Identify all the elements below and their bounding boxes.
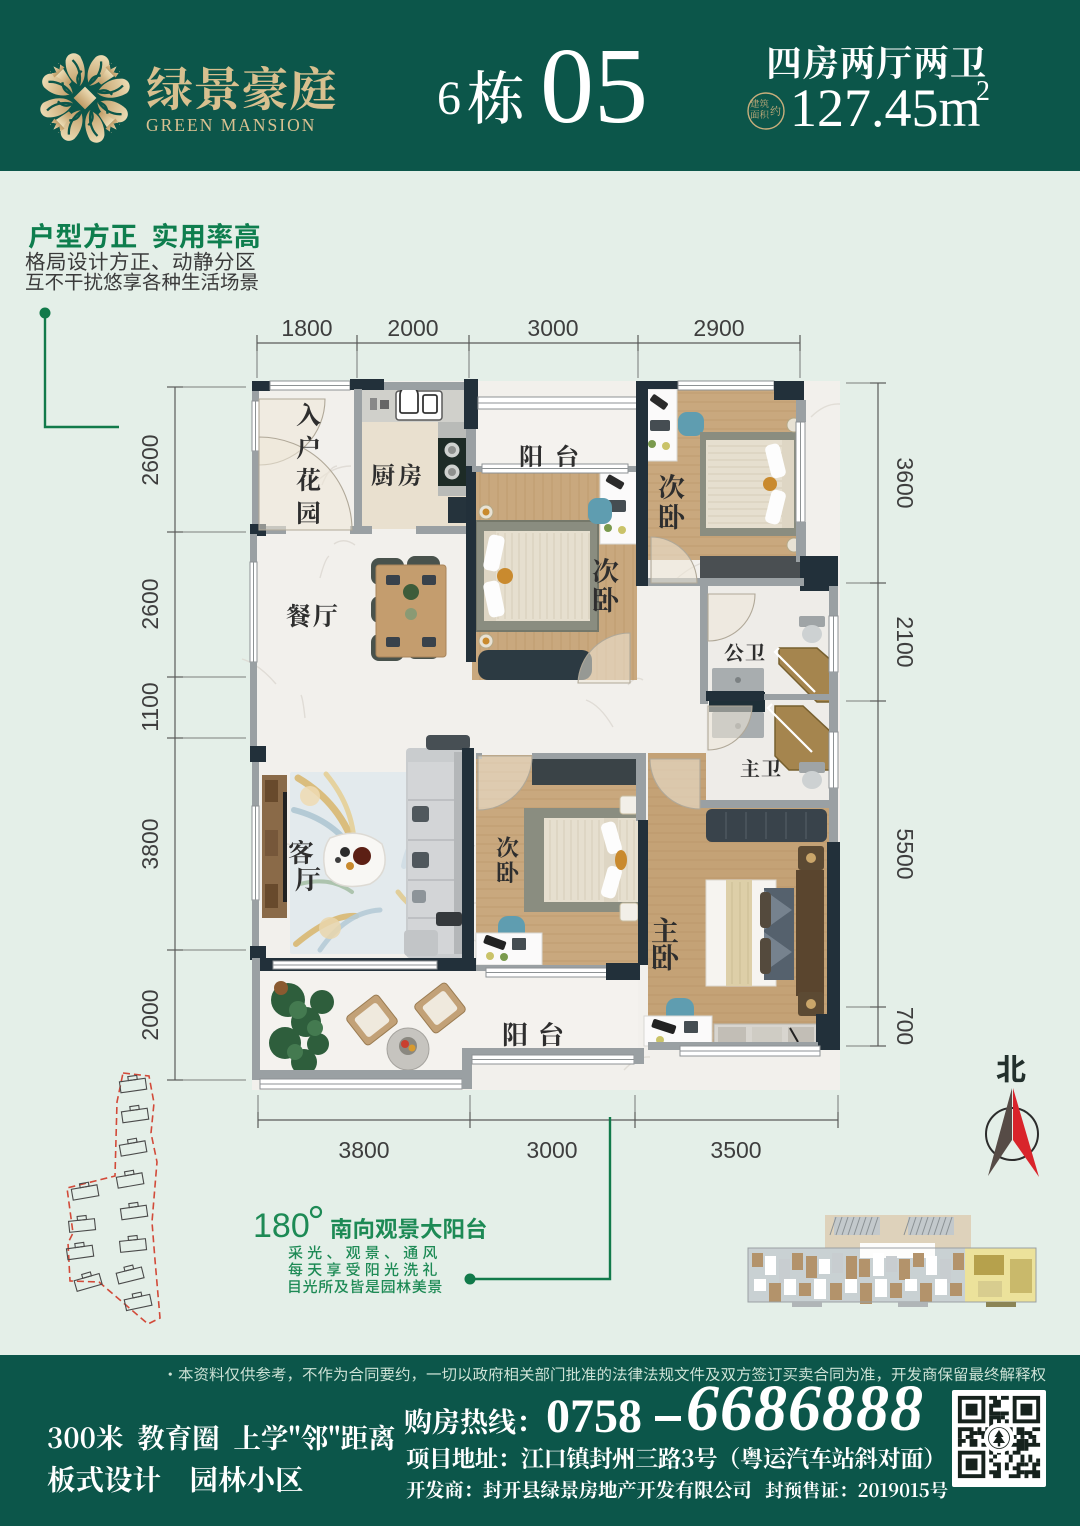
svg-text:1100: 1100: [137, 682, 163, 731]
svg-text:2000: 2000: [387, 315, 438, 341]
svg-text:6: 6: [437, 72, 461, 125]
svg-text:05: 05: [540, 27, 648, 146]
svg-text:180: 180: [253, 1207, 310, 1245]
svg-text:GREEN MANSION: GREEN MANSION: [146, 115, 316, 135]
svg-text:5500: 5500: [892, 828, 918, 879]
svg-text:6686888: 6686888: [686, 1372, 924, 1445]
svg-text:3800: 3800: [137, 818, 163, 869]
svg-text:3000: 3000: [527, 315, 578, 341]
svg-text:2600: 2600: [137, 434, 163, 485]
svg-text:2000: 2000: [137, 989, 163, 1040]
svg-text:3800: 3800: [338, 1137, 389, 1163]
svg-text:127.45m: 127.45m: [790, 78, 981, 138]
svg-text:3600: 3600: [892, 457, 918, 508]
svg-text:3500: 3500: [710, 1137, 761, 1163]
svg-text:0758: 0758: [546, 1390, 642, 1443]
svg-text:2600: 2600: [137, 578, 163, 629]
svg-text:3000: 3000: [526, 1137, 577, 1163]
svg-text:2: 2: [976, 76, 990, 107]
svg-text:700: 700: [892, 1007, 918, 1045]
svg-text:2100: 2100: [892, 616, 918, 667]
svg-text:1800: 1800: [281, 315, 332, 341]
svg-text:2900: 2900: [693, 315, 744, 341]
